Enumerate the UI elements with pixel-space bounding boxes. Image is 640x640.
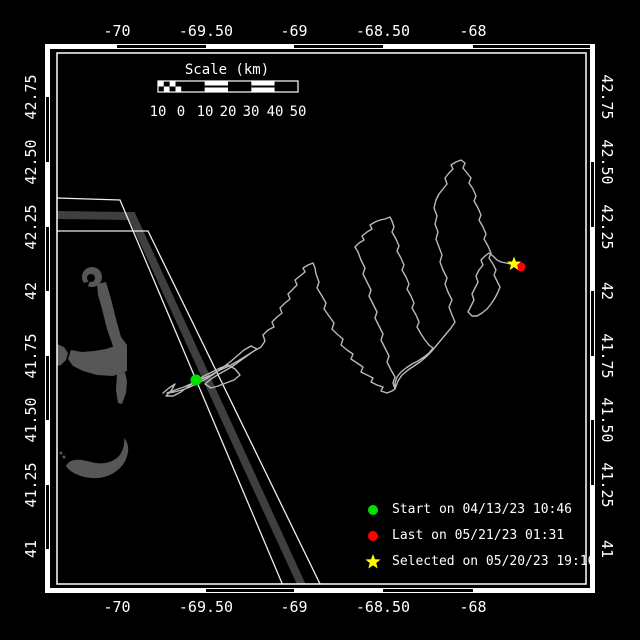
axis-tick-label-right-6: 41.25	[598, 462, 616, 507]
legend-last-label: Last on 05/21/23 01:31	[392, 527, 564, 545]
land-shape-5	[116, 372, 127, 404]
axis-tick-label-bottom-4: -68	[459, 598, 486, 616]
axis-tick-label-top-4: -68	[459, 22, 486, 40]
axis-tick-label-left-5: 41.50	[22, 397, 40, 442]
scalebar-seg-dark	[275, 81, 298, 92]
land-shape-8	[60, 452, 63, 455]
axis-tick-label-top-3: -68.50	[356, 22, 410, 40]
axis-tick-label-left-6: 41.25	[22, 462, 40, 507]
scalebar-checker-cell	[158, 81, 164, 87]
axis-tick-label-left-7: 41	[22, 540, 40, 558]
frame-seg-bottom	[206, 589, 294, 592]
map-canvas: -70-69.50-69-68.50-68-70-69.50-69-68.50-…	[0, 0, 640, 640]
scalebar-number-6: 50	[290, 104, 307, 120]
axis-tick-label-top-0: -70	[103, 22, 130, 40]
scalebar-number-3: 20	[220, 104, 237, 120]
scalebar-number-5: 40	[267, 104, 284, 120]
legend-row-last: Last on 05/21/23 01:31	[364, 527, 564, 545]
scalebar-number-1: 0	[177, 104, 185, 120]
scalebar-seg-midline	[251, 86, 274, 88]
frame-seg-left	[46, 485, 49, 549]
scalebar-checker-cell	[176, 87, 182, 93]
scalebar-seg-dark	[181, 81, 204, 92]
landmass-cape-cod	[57, 267, 128, 478]
scalebar-number-2: 10	[197, 104, 214, 120]
axis-tick-label-right-2: 42.25	[598, 204, 616, 249]
start-marker-icon	[364, 501, 382, 519]
frame-seg-bottom	[383, 589, 473, 592]
axis-tick-label-left-4: 41.75	[22, 333, 40, 378]
axis-tick-label-left-1: 42.50	[22, 139, 40, 184]
land-shape-9	[63, 456, 66, 459]
land-shape-1	[87, 274, 95, 282]
selected-marker-icon	[364, 553, 382, 571]
frame-seg-left	[46, 356, 49, 420]
axis-tick-label-bottom-3: -68.50	[356, 598, 410, 616]
axis-tick-label-right-7: 41	[598, 540, 616, 558]
axis-tick-label-top-2: -69	[280, 22, 307, 40]
frame-seg-right	[591, 291, 594, 356]
glider-track-line	[163, 160, 518, 396]
land-shape-6	[57, 344, 68, 366]
vehicle-track	[163, 160, 518, 396]
frame-seg-right	[591, 162, 594, 227]
frame-seg-left	[46, 227, 49, 291]
axis-tick-label-right-4: 41.75	[598, 333, 616, 378]
scalebar-seg-dark	[228, 81, 251, 92]
frame-seg-top	[117, 45, 206, 48]
scalebar-title: Scale (km)	[185, 62, 269, 78]
axis-tick-label-right-5: 41.50	[598, 397, 616, 442]
outer-frame-band-1	[45, 588, 595, 593]
axis-tick-label-left-2: 42.25	[22, 204, 40, 249]
scalebar-checker-cell	[164, 87, 170, 93]
legend-start-label: Start on 04/13/23 10:46	[392, 501, 572, 519]
frame-seg-top	[473, 45, 590, 48]
scalebar-seg-midline	[205, 86, 228, 88]
axis-tick-label-bottom-2: -69	[280, 598, 307, 616]
axis-tick-label-right-1: 42.50	[598, 139, 616, 184]
axis-tick-label-left-0: 42.75	[22, 74, 40, 119]
legend-row-selected: Selected on 05/20/23 19:16	[364, 553, 596, 571]
legend-row-start: Start on 04/13/23 10:46	[364, 501, 572, 519]
legend-selected-label: Selected on 05/20/23 19:16	[392, 553, 596, 571]
start-point-marker	[191, 375, 202, 386]
shipping-lane	[57, 198, 322, 588]
scalebar-checker-cell	[158, 87, 164, 93]
frame-seg-right	[591, 420, 594, 485]
scalebar-checker-cell	[170, 81, 176, 87]
axis-tick-label-right-3: 42	[598, 282, 616, 300]
axis-tick-label-bottom-0: -70	[103, 598, 130, 616]
frame-seg-top	[294, 45, 383, 48]
land-shape-7	[66, 438, 128, 478]
scalebar-checker-cell	[176, 81, 182, 87]
scalebar-checker-cell	[170, 87, 176, 93]
scalebar-number-0: 10	[150, 104, 167, 120]
last-marker-icon	[364, 527, 382, 545]
land-shape-3	[97, 282, 127, 353]
land-shape-4	[68, 345, 127, 376]
scalebar-graphic	[158, 81, 298, 92]
axis-tick-label-left-3: 42	[22, 282, 40, 300]
axis-tick-label-bottom-1: -69.50	[179, 598, 233, 616]
scalebar-number-4: 30	[243, 104, 260, 120]
axis-tick-label-top-1: -69.50	[179, 22, 233, 40]
frame-seg-left	[46, 97, 49, 162]
axis-tick-label-right-0: 42.75	[598, 74, 616, 119]
scalebar-checker-cell	[164, 81, 170, 87]
track-markers	[191, 257, 526, 386]
